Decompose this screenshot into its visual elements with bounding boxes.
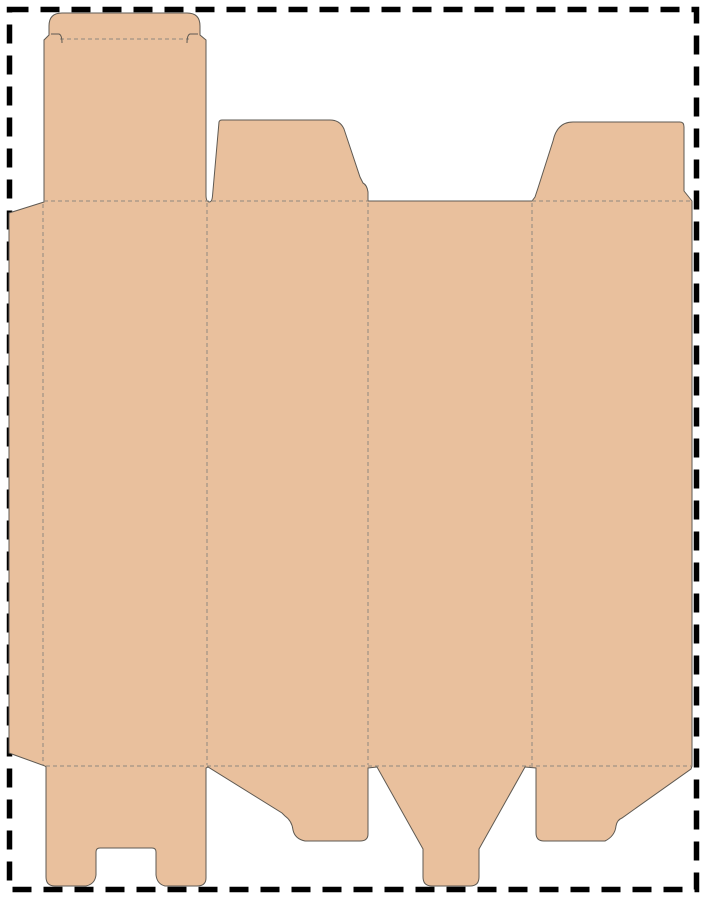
dieline-canvas	[0, 0, 703, 900]
carton-outline	[9, 13, 692, 886]
dieline-page	[0, 0, 703, 900]
